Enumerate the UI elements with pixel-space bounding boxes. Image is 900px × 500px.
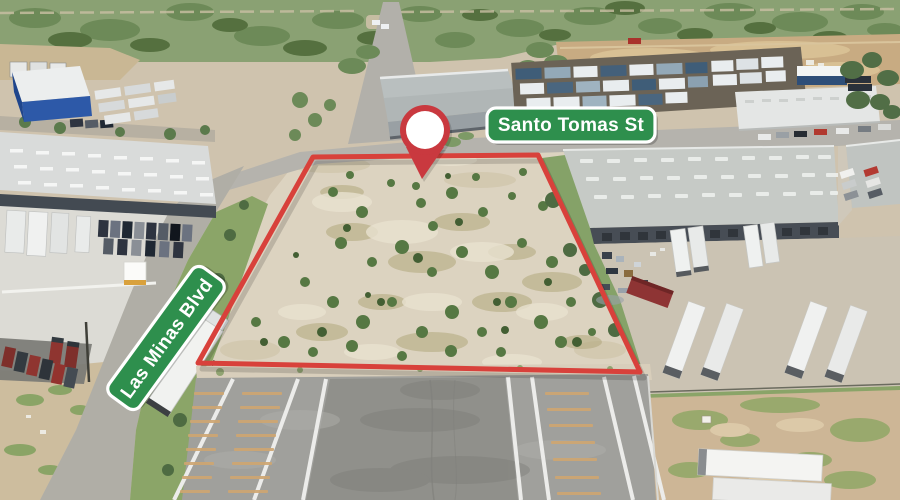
parking-lot	[174, 364, 664, 500]
street-sign-santo-tomas: Santo Tomas St	[487, 108, 658, 145]
pin-center	[406, 111, 444, 149]
trailers-bottom-right	[696, 449, 832, 500]
aerial-photo-canvas: Santo Tomas St Las Minas Blvd	[0, 0, 900, 500]
blue-building	[12, 66, 92, 122]
sign-label: Santo Tomas St	[498, 115, 645, 136]
listing-aerial-photo: Santo Tomas St Las Minas Blvd	[0, 0, 900, 500]
warehouse-left	[0, 132, 216, 218]
dirt-lot-bottom-right	[640, 390, 900, 500]
guard-booth	[124, 262, 146, 285]
